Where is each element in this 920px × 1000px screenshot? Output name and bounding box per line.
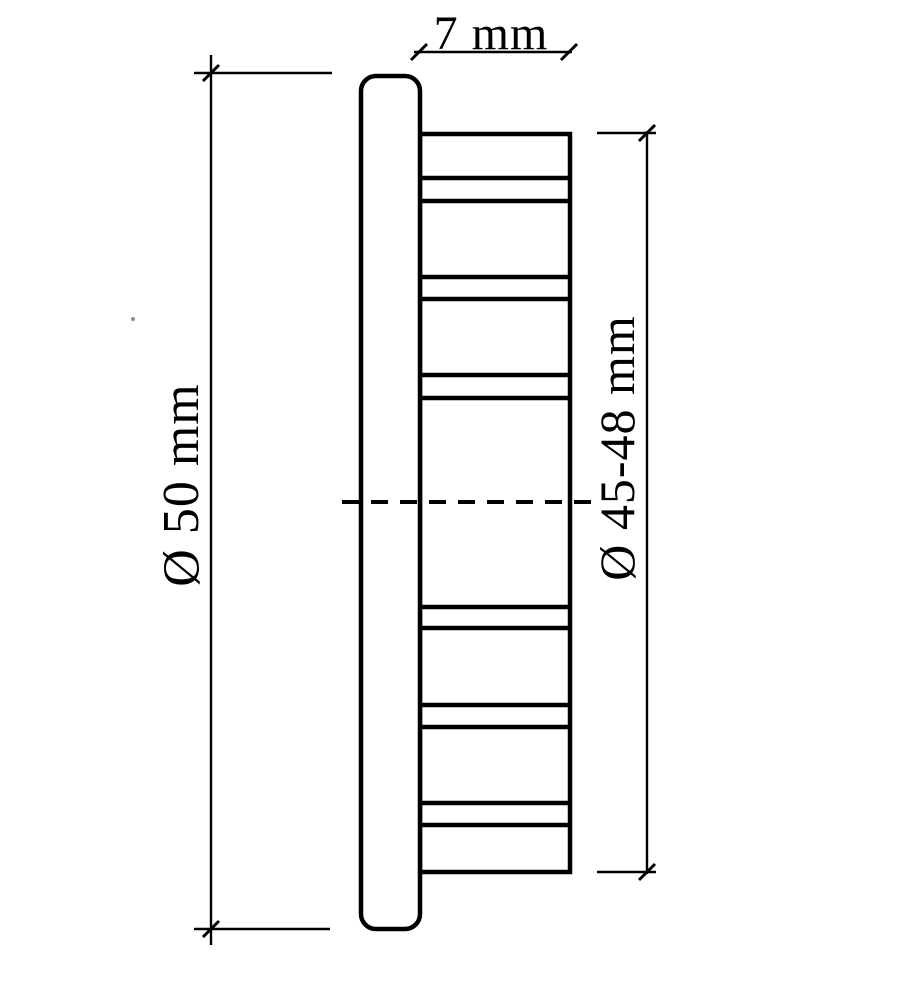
dimension-lines [194,52,656,945]
stray-mark-dot [131,317,135,321]
outer-diameter-label: Ø 50 mm [156,383,208,586]
technical-drawing-canvas: 7 mm Ø 50 mm Ø 45-48 mm [0,0,920,1000]
flange-width-label: 7 mm [434,10,549,58]
insert-diameter-label: Ø 45-48 mm [592,315,642,581]
plug-section-drawing [0,0,920,1000]
